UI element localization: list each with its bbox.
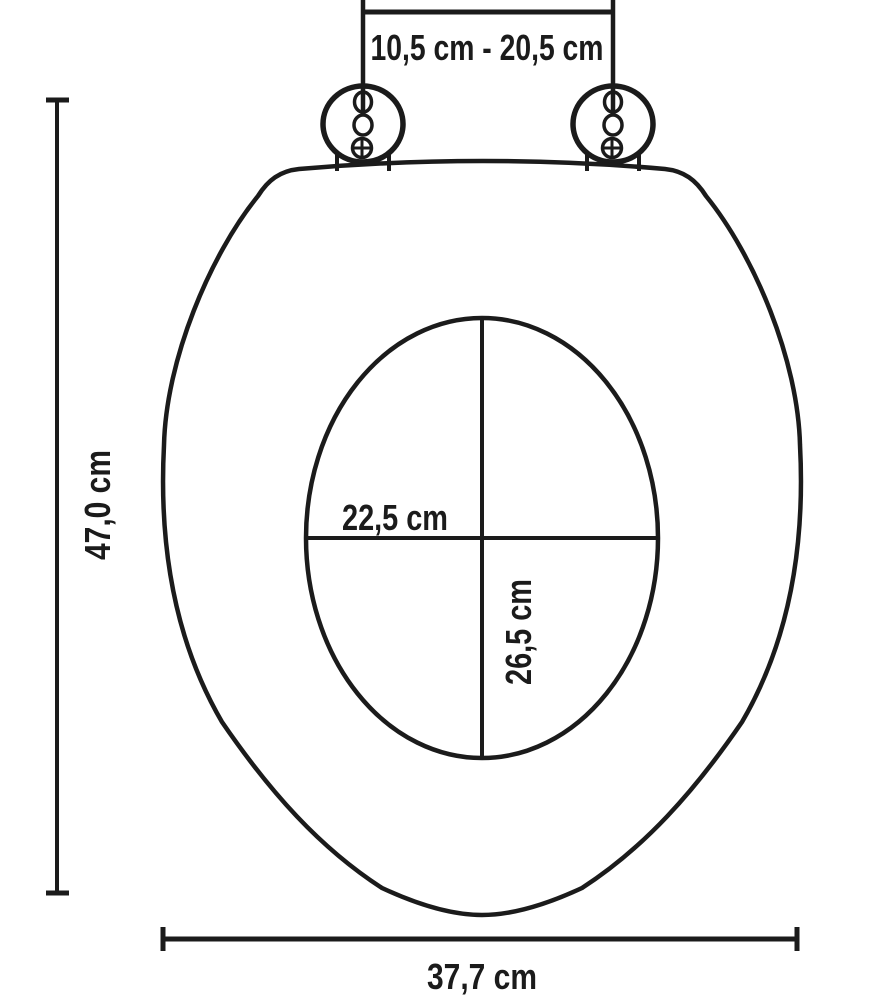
hinge-distance-dimension: 10,5 cm - 20,5 cm: [361, 0, 615, 115]
total-width-label: 37,7 cm: [427, 956, 537, 997]
screw-icon: [603, 139, 622, 158]
total-width-dimension: 37,7 cm: [163, 927, 797, 997]
screw-icon: [353, 139, 372, 158]
diagram-canvas: 10,5 cm - 20,5 cm 22: [0, 0, 885, 1000]
hinge-distance-label: 10,5 cm - 20,5 cm: [371, 27, 604, 68]
right-hinge: [573, 86, 653, 171]
inner-depth-label: 26,5 cm: [498, 579, 539, 685]
inner-width-label: 22,5 cm: [342, 497, 448, 538]
left-hinge: [323, 86, 403, 171]
toilet-seat-dimension-diagram: 10,5 cm - 20,5 cm 22: [0, 0, 885, 1000]
total-length-dimension: 47,0 cm: [46, 100, 118, 893]
total-length-label: 47,0 cm: [77, 450, 118, 560]
